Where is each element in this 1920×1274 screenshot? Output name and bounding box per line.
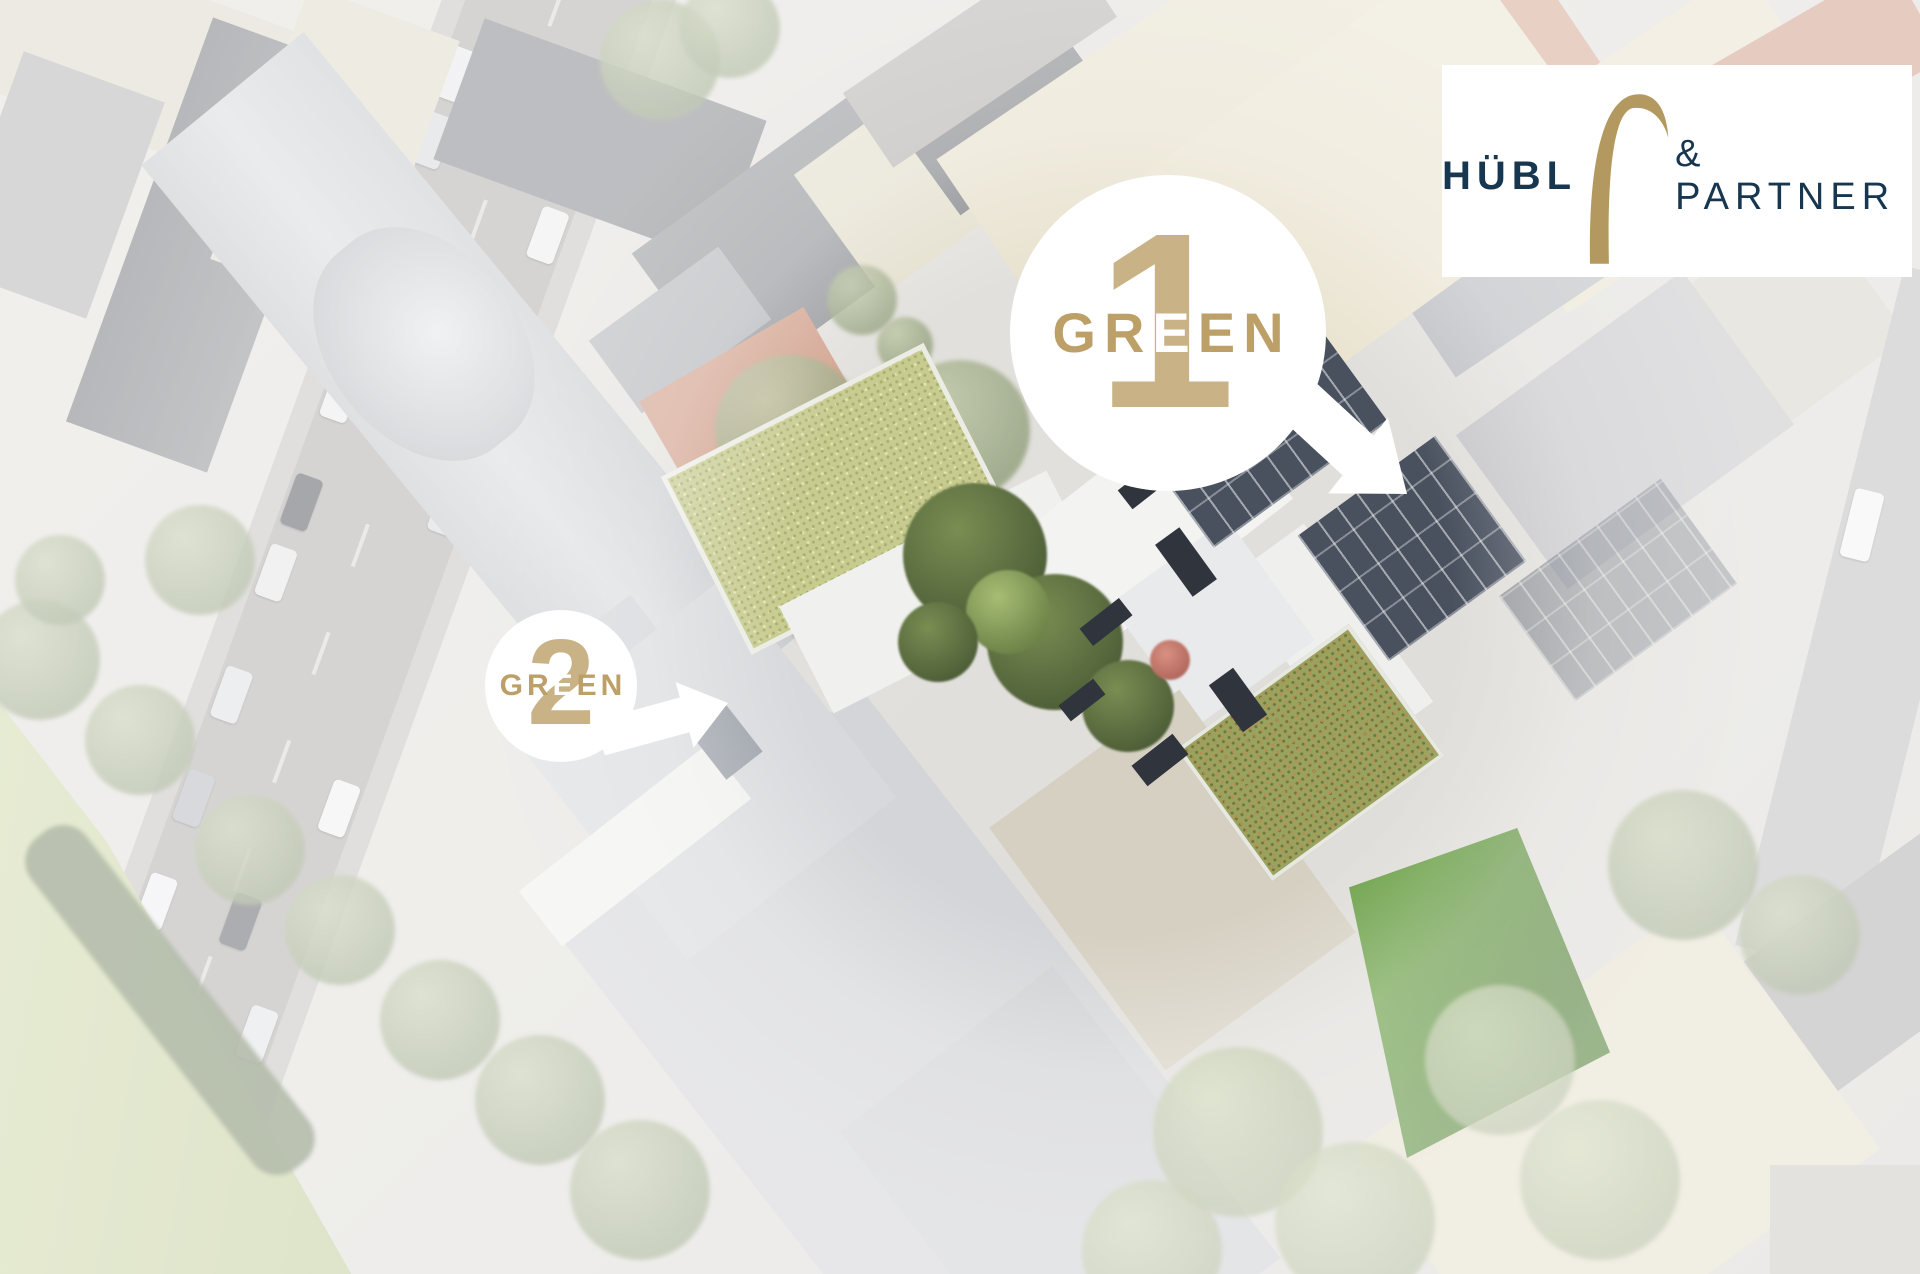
- gold-arc-icon: [1581, 87, 1671, 265]
- tree: [570, 1120, 710, 1260]
- logo-text-bold: HÜBL: [1442, 154, 1577, 199]
- red-shrub: [1150, 640, 1190, 680]
- callout-green-2: 2 GREEN: [485, 610, 637, 762]
- tree: [1608, 790, 1758, 940]
- tree: [380, 960, 500, 1080]
- tree: [15, 535, 105, 625]
- tree: [1425, 985, 1575, 1135]
- tree: [1520, 1100, 1680, 1260]
- tree: [1740, 875, 1860, 995]
- label-part: GR: [1052, 305, 1152, 361]
- callout-green-1: 1 GREEN: [1010, 175, 1326, 491]
- logo-text-rest: & PARTNER: [1675, 133, 1912, 219]
- company-logo: HÜBL & PARTNER: [1442, 65, 1912, 277]
- callout-label: GREEN: [1010, 175, 1326, 491]
- tree: [195, 795, 305, 905]
- label-part: EN: [577, 671, 627, 701]
- label-part-knockout: E: [553, 671, 577, 701]
- courtyard-tree: [966, 570, 1050, 654]
- callout-label: GREEN: [485, 610, 637, 762]
- tree: [85, 685, 195, 795]
- label-part: GR: [500, 671, 553, 701]
- tree: [145, 505, 255, 615]
- label-part-knockout: E: [1152, 305, 1197, 361]
- courtyard-tree: [898, 602, 978, 682]
- aerial-rendering: 1 GREEN 2 GREEN HÜBL & PARTNER: [0, 0, 1920, 1274]
- gravel-corner: [1770, 1165, 1920, 1274]
- tree: [285, 875, 395, 985]
- label-part: EN: [1198, 305, 1292, 361]
